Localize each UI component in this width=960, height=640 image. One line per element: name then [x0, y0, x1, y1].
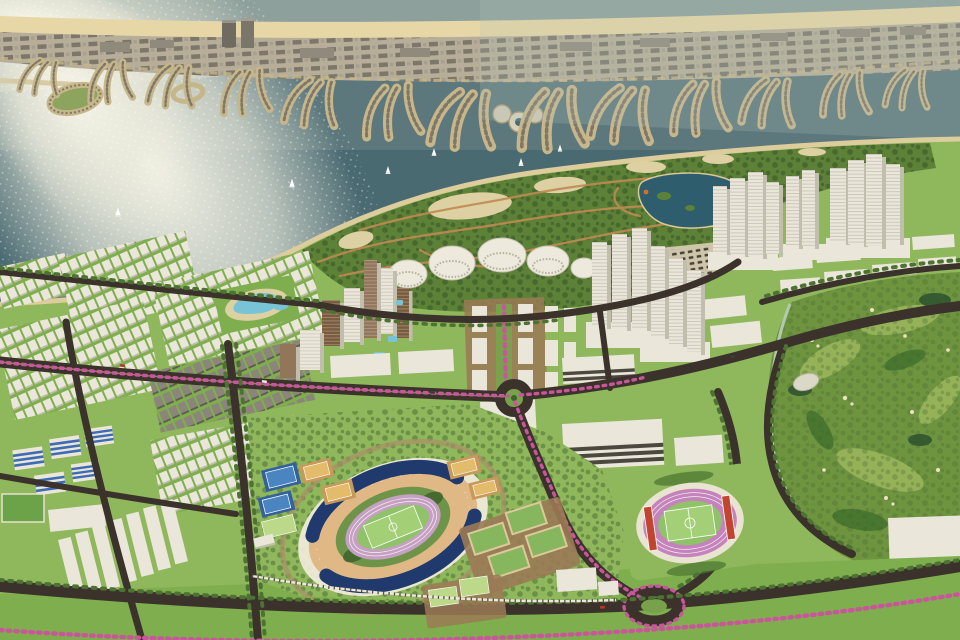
scene-canvas — [0, 0, 960, 640]
lake-islet — [657, 192, 671, 200]
shore-towers-b — [786, 170, 819, 249]
training-stadium — [617, 462, 762, 583]
green-roof-building — [2, 494, 44, 522]
roundabout-main — [500, 384, 528, 412]
masterplan-render — [0, 0, 960, 640]
distance-haze — [480, 0, 960, 140]
lake-islet — [685, 205, 695, 211]
shore-towers-c — [830, 154, 904, 249]
lake-bridge — [644, 190, 649, 195]
